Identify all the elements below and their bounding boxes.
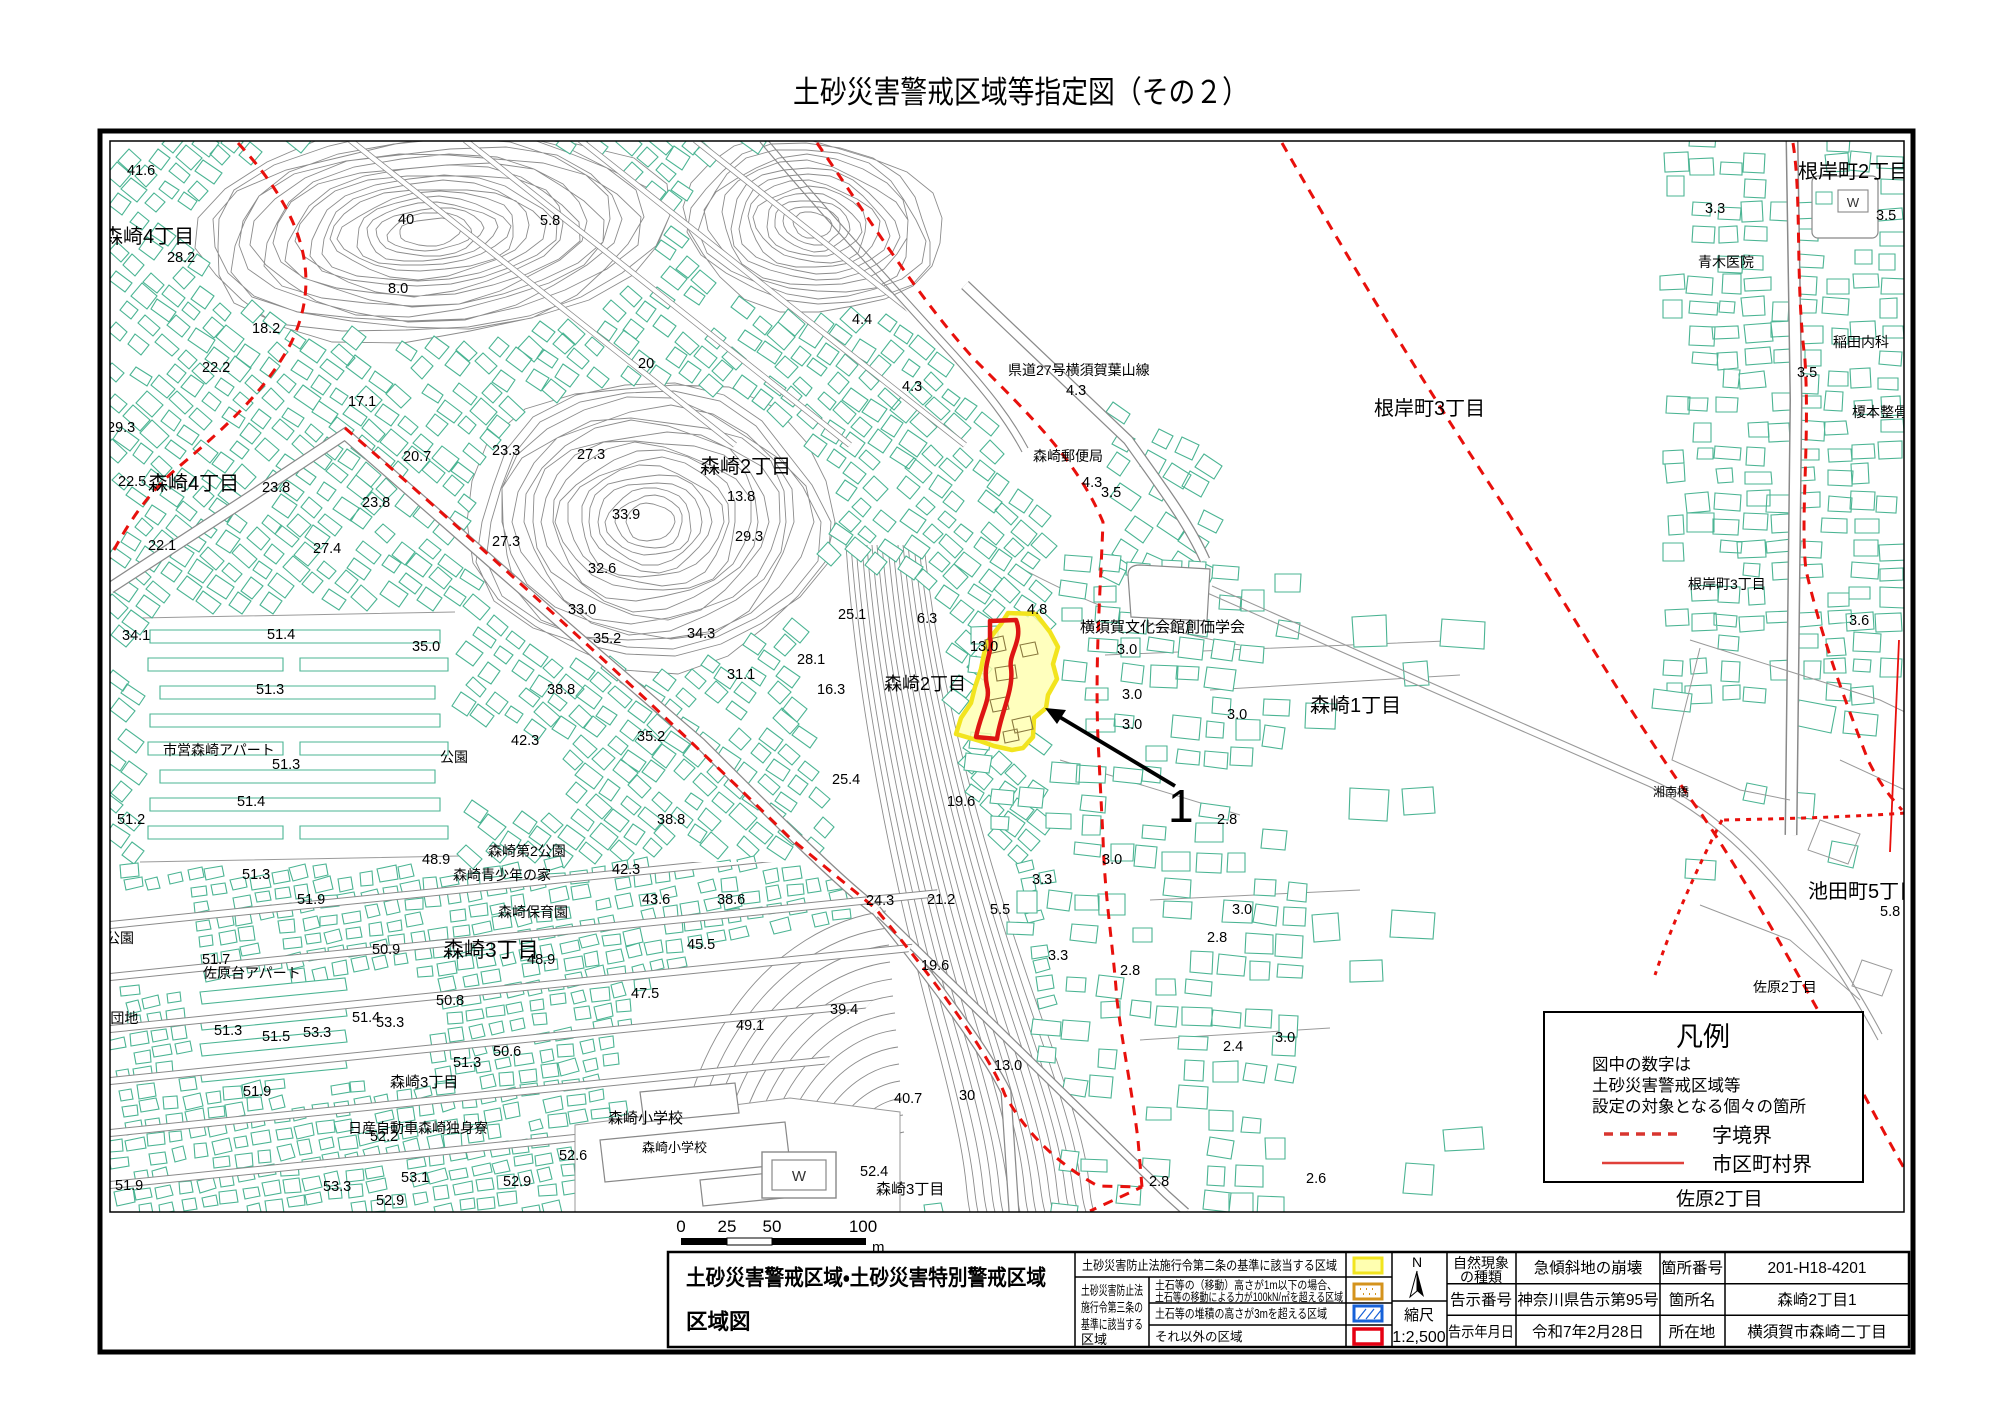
svg-text:52.9: 52.9 [376, 1193, 404, 1209]
svg-text:51.9: 51.9 [115, 1178, 143, 1194]
svg-text:の種類: の種類 [1460, 1269, 1502, 1285]
svg-text:35.0: 35.0 [412, 639, 440, 655]
svg-text:森崎2丁目1: 森崎2丁目1 [1777, 1291, 1856, 1309]
svg-text:52.9: 52.9 [503, 1174, 531, 1190]
svg-text:53.3: 53.3 [303, 1025, 331, 1041]
svg-text:4.8: 4.8 [1027, 602, 1047, 618]
svg-text:25: 25 [718, 1217, 737, 1236]
svg-text:13.8: 13.8 [727, 489, 755, 505]
svg-text:5.8: 5.8 [540, 213, 560, 229]
svg-text:50.9: 50.9 [372, 942, 400, 958]
svg-text:土砂災害警戒区域等: 土砂災害警戒区域等 [1592, 1076, 1741, 1095]
svg-text:区域: 区域 [1081, 1332, 1107, 1347]
svg-text:市区町村界: 市区町村界 [1712, 1153, 1812, 1176]
svg-text:13.0: 13.0 [994, 1058, 1022, 1074]
svg-text:4.3: 4.3 [1066, 383, 1086, 399]
svg-text:1:2,500: 1:2,500 [1392, 1329, 1445, 1346]
svg-text:50.6: 50.6 [493, 1044, 521, 1060]
svg-text:字境界: 字境界 [1712, 1124, 1772, 1147]
svg-text:19.6: 19.6 [947, 794, 975, 810]
svg-text:凡例: 凡例 [1676, 1022, 1730, 1052]
svg-text:35.2: 35.2 [593, 631, 621, 647]
svg-text:21.2: 21.2 [927, 892, 955, 908]
svg-text:市営森崎アパート: 市営森崎アパート [163, 742, 275, 758]
svg-text:51.3: 51.3 [256, 682, 284, 698]
svg-text:34.1: 34.1 [122, 628, 150, 644]
svg-text:3.0: 3.0 [1227, 707, 1247, 723]
svg-text:急傾斜地の崩壊: 急傾斜地の崩壊 [1534, 1259, 1643, 1277]
svg-text:3.3: 3.3 [1705, 201, 1725, 217]
svg-text:8.0: 8.0 [388, 281, 408, 297]
svg-text:51.4: 51.4 [237, 794, 265, 810]
svg-text:45.5: 45.5 [687, 937, 715, 953]
svg-text:神奈川県告示第95号: 神奈川県告示第95号 [1517, 1291, 1658, 1309]
svg-text:40.7: 40.7 [894, 1091, 922, 1107]
svg-text:W: W [792, 1168, 807, 1185]
svg-text:51.3: 51.3 [453, 1055, 481, 1071]
svg-text:28.2: 28.2 [167, 250, 195, 266]
svg-text:23.3: 23.3 [492, 443, 520, 459]
svg-text:佐原2丁目: 佐原2丁目 [1676, 1188, 1763, 1210]
svg-text:39.4: 39.4 [830, 1002, 858, 1018]
svg-text:土石等の（移動）高さが1m以下の場合、: 土石等の（移動）高さが1m以下の場合、 [1155, 1278, 1337, 1292]
svg-text:27.3: 27.3 [577, 447, 605, 463]
svg-text:横須賀文化会館創価学会: 横須賀文化会館創価学会 [1080, 619, 1245, 636]
svg-text:稲田内科: 稲田内科 [1833, 334, 1889, 350]
svg-text:52.6: 52.6 [559, 1148, 587, 1164]
svg-text:25.4: 25.4 [832, 772, 860, 788]
svg-text:図中の数字は: 図中の数字は [1592, 1055, 1691, 1074]
svg-text:51.3: 51.3 [272, 757, 300, 773]
svg-text:3.0: 3.0 [1122, 717, 1142, 733]
svg-text:根岸町3丁目: 根岸町3丁目 [1374, 397, 1485, 420]
svg-text:22.5: 22.5 [118, 474, 146, 490]
svg-text:3.0: 3.0 [1117, 642, 1137, 658]
svg-text:3.0: 3.0 [1122, 687, 1142, 703]
svg-text:52.2: 52.2 [370, 1129, 398, 1145]
svg-text:W: W [1847, 195, 1860, 210]
svg-text:森崎4丁目: 森崎4丁目 [148, 472, 239, 495]
svg-text:3.5: 3.5 [1876, 208, 1896, 224]
svg-text:38.8: 38.8 [547, 682, 575, 698]
svg-text:18.2: 18.2 [252, 321, 280, 337]
svg-text:令和7年2月28日: 令和7年2月28日 [1532, 1323, 1644, 1341]
svg-text:51.5: 51.5 [262, 1029, 290, 1045]
svg-text:2.6: 2.6 [1306, 1171, 1326, 1187]
svg-text:佐原2丁目: 佐原2丁目 [1753, 979, 1817, 995]
svg-text:森崎郵便局: 森崎郵便局 [1033, 448, 1103, 464]
svg-text:N: N [1412, 1254, 1422, 1270]
svg-text:森崎2丁目: 森崎2丁目 [884, 674, 966, 694]
svg-text:25.1: 25.1 [838, 607, 866, 623]
svg-text:5.8: 5.8 [1880, 904, 1900, 920]
svg-text:3.6: 3.6 [1849, 613, 1869, 629]
svg-text:3.0: 3.0 [1232, 902, 1252, 918]
svg-text:51.9: 51.9 [297, 892, 325, 908]
svg-text:13.0: 13.0 [970, 639, 998, 655]
svg-text:2.4: 2.4 [1223, 1039, 1243, 1055]
svg-text:土石等の堆積の高さが3mを超える区域: 土石等の堆積の高さが3mを超える区域 [1155, 1306, 1327, 1321]
svg-text:土砂災害防止法施行令第二条の基準に該当する区域: 土砂災害防止法施行令第二条の基準に該当する区域 [1082, 1258, 1337, 1273]
svg-text:34.3: 34.3 [687, 626, 715, 642]
svg-text:38.8: 38.8 [657, 812, 685, 828]
svg-text:51.7: 51.7 [202, 952, 230, 968]
svg-text:5.5: 5.5 [990, 902, 1010, 918]
svg-text:30: 30 [959, 1088, 975, 1104]
svg-text:4.3: 4.3 [1082, 475, 1102, 491]
svg-text:土砂災害警戒区域・土砂災害特別警戒区域: 土砂災害警戒区域・土砂災害特別警戒区域 [686, 1265, 1046, 1290]
svg-text:50: 50 [763, 1217, 782, 1236]
svg-text:縮尺: 縮尺 [1404, 1307, 1434, 1324]
svg-text:森崎保育園: 森崎保育園 [498, 904, 568, 920]
svg-text:根岸町2丁目: 根岸町2丁目 [1798, 160, 1909, 183]
svg-text:根岸町3丁目: 根岸町3丁目 [1688, 576, 1766, 592]
svg-text:3.5: 3.5 [1797, 365, 1817, 381]
svg-text:告示年月日: 告示年月日 [1448, 1324, 1514, 1341]
svg-text:1: 1 [1168, 780, 1194, 832]
svg-text:33.9: 33.9 [612, 507, 640, 523]
svg-text:22.2: 22.2 [202, 360, 230, 376]
svg-text:24.3: 24.3 [866, 893, 894, 909]
svg-text:35.2: 35.2 [637, 729, 665, 745]
svg-text:2.8: 2.8 [1120, 963, 1140, 979]
svg-text:それ以外の区域: それ以外の区域 [1155, 1330, 1243, 1344]
svg-text:青木医院: 青木医院 [1698, 254, 1754, 270]
svg-text:20: 20 [638, 356, 654, 372]
svg-text:2.8: 2.8 [1207, 930, 1227, 946]
svg-text:森崎4丁目: 森崎4丁目 [103, 225, 194, 248]
svg-text:41.6: 41.6 [127, 163, 155, 179]
svg-text:所在地: 所在地 [1669, 1323, 1716, 1341]
svg-text:森崎1丁目: 森崎1丁目 [1310, 694, 1401, 717]
svg-text:48.9: 48.9 [527, 952, 555, 968]
svg-text:日産自動車森崎独身寮: 日産自動車森崎独身寮 [348, 1120, 488, 1136]
svg-text:m: m [872, 1239, 885, 1256]
svg-text:51.3: 51.3 [242, 867, 270, 883]
svg-text:土砂災害警戒区域等指定図（その２）: 土砂災害警戒区域等指定図（その２） [793, 75, 1249, 110]
svg-text:森崎3丁目: 森崎3丁目 [390, 1074, 458, 1091]
svg-text:201-H18-4201: 201-H18-4201 [1767, 1260, 1866, 1277]
svg-text:43.6: 43.6 [642, 892, 670, 908]
svg-text:森崎小学校: 森崎小学校 [608, 1110, 683, 1127]
svg-text:32.6: 32.6 [588, 561, 616, 577]
svg-text:33.0: 33.0 [568, 602, 596, 618]
svg-text:公園: 公園 [440, 749, 468, 765]
svg-text:51.3: 51.3 [214, 1023, 242, 1039]
svg-text:箇所名: 箇所名 [1669, 1291, 1716, 1309]
svg-text:横須賀市森崎二丁目: 横須賀市森崎二丁目 [1747, 1323, 1887, 1341]
svg-text:土砂災害防止法: 土砂災害防止法 [1081, 1283, 1143, 1298]
svg-text:27.3: 27.3 [492, 534, 520, 550]
svg-text:4.4: 4.4 [852, 312, 872, 328]
svg-text:3.0: 3.0 [1102, 852, 1122, 868]
svg-text:19.6: 19.6 [921, 958, 949, 974]
svg-text:20.7: 20.7 [403, 449, 431, 465]
svg-text:県道27号横須賀葉山線: 県道27号横須賀葉山線 [1008, 362, 1150, 378]
svg-text:2.8: 2.8 [1217, 812, 1237, 828]
svg-text:4.3: 4.3 [902, 379, 922, 395]
svg-text:50.8: 50.8 [436, 993, 464, 1009]
svg-text:28.1: 28.1 [797, 652, 825, 668]
svg-text:池田町5丁目: 池田町5丁目 [1808, 880, 1919, 903]
svg-text:31.1: 31.1 [727, 667, 755, 683]
svg-text:2.8: 2.8 [1149, 1174, 1169, 1190]
svg-text:16.3: 16.3 [817, 682, 845, 698]
svg-text:3.0: 3.0 [1275, 1030, 1295, 1046]
svg-text:土石等の移動による力が100kN/㎡を超える区域: 土石等の移動による力が100kN/㎡を超える区域 [1155, 1290, 1343, 1304]
svg-text:29.3: 29.3 [735, 529, 763, 545]
svg-text:湘南橋: 湘南橋 [1653, 784, 1689, 799]
svg-text:100: 100 [849, 1217, 877, 1236]
svg-text:40: 40 [398, 212, 414, 228]
svg-text:53.3: 53.3 [376, 1015, 404, 1031]
svg-text:48.9: 48.9 [422, 852, 450, 868]
svg-text:38.6: 38.6 [717, 892, 745, 908]
svg-text:27.4: 27.4 [313, 541, 341, 557]
svg-text:53.3: 53.3 [323, 1179, 351, 1195]
svg-text:51.2: 51.2 [117, 812, 145, 828]
svg-text:23.8: 23.8 [262, 480, 290, 496]
svg-text:森崎小学校: 森崎小学校 [642, 1140, 707, 1155]
svg-text:6.3: 6.3 [917, 611, 937, 627]
svg-text:3.3: 3.3 [1032, 872, 1052, 888]
svg-text:42.3: 42.3 [612, 862, 640, 878]
svg-text:17.1: 17.1 [348, 394, 376, 410]
svg-text:51.4: 51.4 [267, 627, 295, 643]
svg-text:告示番号: 告示番号 [1450, 1291, 1512, 1309]
svg-text:設定の対象となる個々の箇所: 設定の対象となる個々の箇所 [1592, 1097, 1806, 1116]
svg-text:森崎青少年の家: 森崎青少年の家 [453, 867, 551, 883]
svg-text:29.3: 29.3 [107, 420, 135, 436]
svg-text:森崎3丁目: 森崎3丁目 [443, 939, 539, 962]
svg-text:53.1: 53.1 [401, 1170, 429, 1186]
svg-text:52.4: 52.4 [860, 1164, 888, 1180]
svg-text:42.3: 42.3 [511, 733, 539, 749]
svg-text:森崎3丁目: 森崎3丁目 [876, 1181, 944, 1198]
svg-text:51.9: 51.9 [243, 1084, 271, 1100]
svg-text:基準に該当する: 基準に該当する [1081, 1317, 1143, 1332]
svg-text:区域図: 区域図 [686, 1309, 751, 1334]
svg-text:箇所番号: 箇所番号 [1661, 1259, 1723, 1277]
svg-text:施行令第三条の: 施行令第三条の [1081, 1300, 1143, 1315]
svg-text:49.1: 49.1 [736, 1018, 764, 1034]
svg-text:22.1: 22.1 [148, 538, 176, 554]
svg-text:3.3: 3.3 [1048, 948, 1068, 964]
svg-text:森崎2丁目: 森崎2丁目 [700, 455, 791, 478]
svg-text:森崎第2公園: 森崎第2公園 [488, 843, 566, 859]
svg-text:23.8: 23.8 [362, 495, 390, 511]
svg-text:47.5: 47.5 [631, 986, 659, 1002]
svg-text:0: 0 [676, 1217, 685, 1236]
svg-text:3.5: 3.5 [1101, 485, 1121, 501]
